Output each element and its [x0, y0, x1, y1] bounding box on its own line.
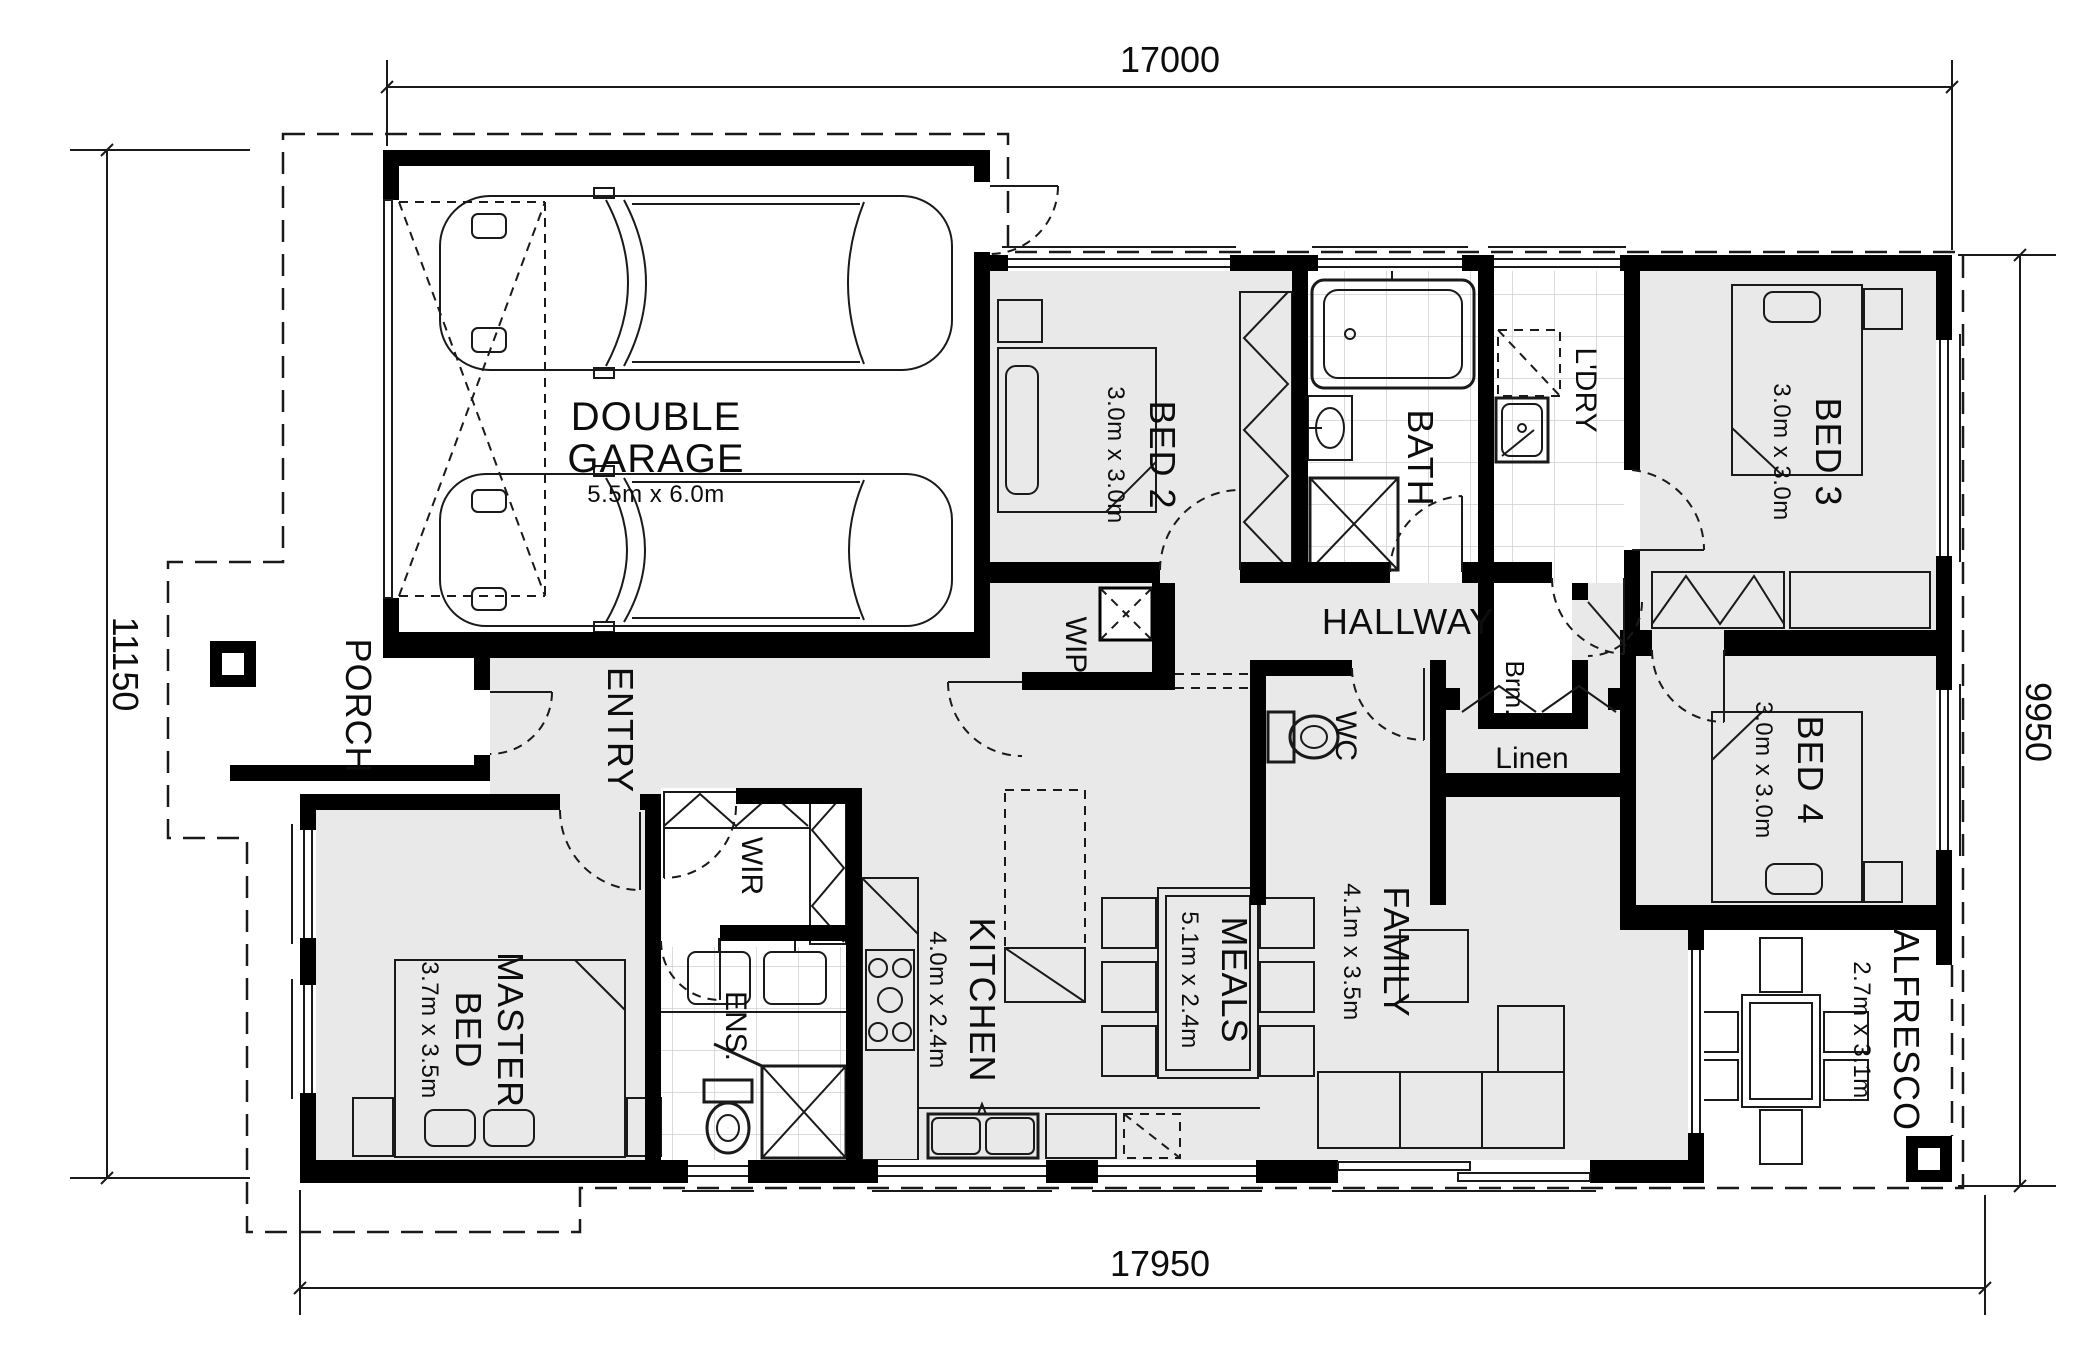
- dim-right-value: 9950: [2018, 682, 2059, 762]
- floor-plan-page: DOUBLE GARAGE 5.5m x 6.0m BED 2 3.0m x 3…: [0, 0, 2100, 1372]
- label-family: FAMILY 4.1m x 3.5m: [1338, 883, 1417, 1021]
- ens-name: ENS.: [719, 991, 752, 1061]
- window-bath: [1312, 247, 1468, 271]
- garage-name-line1: DOUBLE: [571, 395, 742, 439]
- family-size: 4.1m x 3.5m: [1338, 883, 1365, 1021]
- label-bath: BATH: [1400, 409, 1441, 506]
- family-name: FAMILY: [1376, 886, 1417, 1017]
- label-entry: ENTRY: [600, 667, 641, 793]
- wir-name: WIR: [735, 837, 768, 895]
- brm-name: Brm.: [1500, 661, 1530, 716]
- dim-top-value: 17000: [1120, 39, 1220, 80]
- porch-name: PORCH: [338, 638, 379, 773]
- label-porch: PORCH: [338, 638, 379, 773]
- label-bed4: BED 4 3.0m x 3.0m: [1750, 701, 1831, 839]
- bed2-size: 3.0m x 3.0m: [1102, 386, 1129, 524]
- master-size: 3.7m x 3.5m: [416, 961, 443, 1099]
- label-brm: Brm.: [1500, 661, 1530, 716]
- label-bed3: BED 3 3.0m x 3.0m: [1768, 383, 1849, 521]
- floor-plan-drawing: DOUBLE GARAGE 5.5m x 6.0m BED 2 3.0m x 3…: [0, 0, 2100, 1372]
- window-ldry: [1488, 247, 1626, 271]
- dim-top: 17000: [381, 39, 1958, 250]
- ldry-name: L'DRY: [1569, 347, 1602, 432]
- alfresco-name: ALFRESCO: [1886, 929, 1927, 1131]
- bath-name: BATH: [1400, 409, 1441, 506]
- window-kitchen: [872, 1160, 1052, 1191]
- bed4-name: BED 4: [1790, 715, 1831, 824]
- bed4-size: 3.0m x 3.0m: [1750, 701, 1777, 839]
- meals-name: MEALS: [1214, 916, 1255, 1043]
- label-ens: ENS.: [719, 991, 752, 1061]
- label-wip: WIP: [1059, 617, 1092, 674]
- kitchen-name: KITCHEN: [962, 917, 1003, 1082]
- dim-bottom: 17950: [294, 1190, 1991, 1315]
- sliding-door-family: [1332, 1160, 1596, 1191]
- alfresco-size: 2.7m x 3.1m: [1848, 961, 1875, 1099]
- garage-name-line2: GARAGE: [567, 437, 744, 481]
- label-kitchen: KITCHEN 4.0m x 2.4m: [924, 917, 1003, 1082]
- window-master-1: [292, 824, 316, 944]
- window-bed3: [1936, 334, 1960, 562]
- label-meals: MEALS 5.1m x 2.4m: [1176, 911, 1255, 1049]
- wip-name: WIP: [1059, 617, 1092, 674]
- bed3-name: BED 3: [1808, 397, 1849, 506]
- entry-name: ENTRY: [600, 667, 641, 793]
- master-name-line2: BED: [448, 991, 489, 1068]
- label-garage: DOUBLE GARAGE 5.5m x 6.0m: [567, 395, 744, 508]
- window-bed2: [1002, 247, 1236, 271]
- label-wc: WC: [1329, 711, 1362, 761]
- dim-right: 9950: [1958, 249, 2059, 1192]
- label-ldry: L'DRY: [1569, 347, 1602, 432]
- bed2-name: BED 2: [1142, 400, 1183, 509]
- label-bed2: BED 2 3.0m x 3.0m: [1102, 386, 1183, 524]
- kitchen-size: 4.0m x 2.4m: [924, 931, 951, 1069]
- linen-name: Linen: [1495, 742, 1568, 775]
- outdoor-table-icon: [1694, 938, 1868, 1164]
- master-name-line1: MASTER: [490, 952, 531, 1108]
- dim-bottom-value: 17950: [1110, 1243, 1210, 1284]
- window-ens: [682, 1160, 754, 1191]
- window-family-alfresco: [1688, 950, 1704, 1133]
- meals-size: 5.1m x 2.4m: [1176, 911, 1203, 1049]
- garage-rear-door: [990, 186, 1058, 254]
- window-bed4: [1936, 684, 1960, 856]
- label-wir: WIR: [735, 837, 768, 895]
- window-master-2: [292, 979, 316, 1099]
- window-meals: [1092, 1160, 1262, 1191]
- garage-door: [383, 200, 545, 598]
- garage-size: 5.5m x 6.0m: [587, 481, 725, 508]
- wc-name: WC: [1329, 711, 1362, 761]
- bed3-size: 3.0m x 3.0m: [1768, 383, 1795, 521]
- dim-left-value: 11150: [105, 617, 146, 712]
- hallway-name: HALLWAY: [1322, 601, 1494, 642]
